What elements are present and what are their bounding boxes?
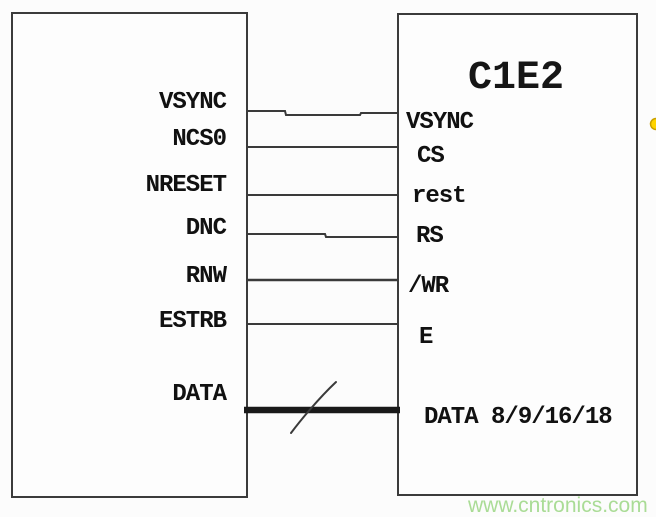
pin-label-e: E: [419, 326, 432, 350]
pin-label-rnw: RNW: [186, 265, 226, 289]
pin-label-vsync-right: VSYNC: [406, 111, 473, 135]
chip-title: C1E2: [468, 59, 564, 99]
pin-label-dnc: DNC: [186, 217, 226, 241]
pin-label-ncs0: NCS0: [172, 128, 226, 152]
wire-rs: [248, 234, 398, 237]
pin-label-vsync-left: VSYNC: [159, 91, 226, 115]
pin-label-nreset: NRESET: [146, 174, 226, 198]
wire-vsync: [248, 111, 398, 115]
left-block-outline: [11, 12, 248, 498]
watermark-text: www.cntronics.com: [468, 494, 648, 517]
pin-label-data-left: DATA: [172, 383, 226, 407]
pin-label-cs: CS: [417, 145, 444, 169]
schematic-canvas: VSYNC NCS0 NRESET DNC RNW ESTRB DATA C1E…: [0, 0, 656, 517]
yellow-marker-dot: [651, 119, 656, 130]
pin-label-estrb: ESTRB: [159, 310, 226, 334]
pin-label-wr: /WR: [408, 275, 448, 299]
pin-label-rs: RS: [416, 225, 443, 249]
pin-label-data-bus-right: DATA 8/9/16/18: [424, 406, 612, 430]
bus-slash: [291, 382, 336, 433]
pin-label-rest: rest: [412, 185, 466, 209]
